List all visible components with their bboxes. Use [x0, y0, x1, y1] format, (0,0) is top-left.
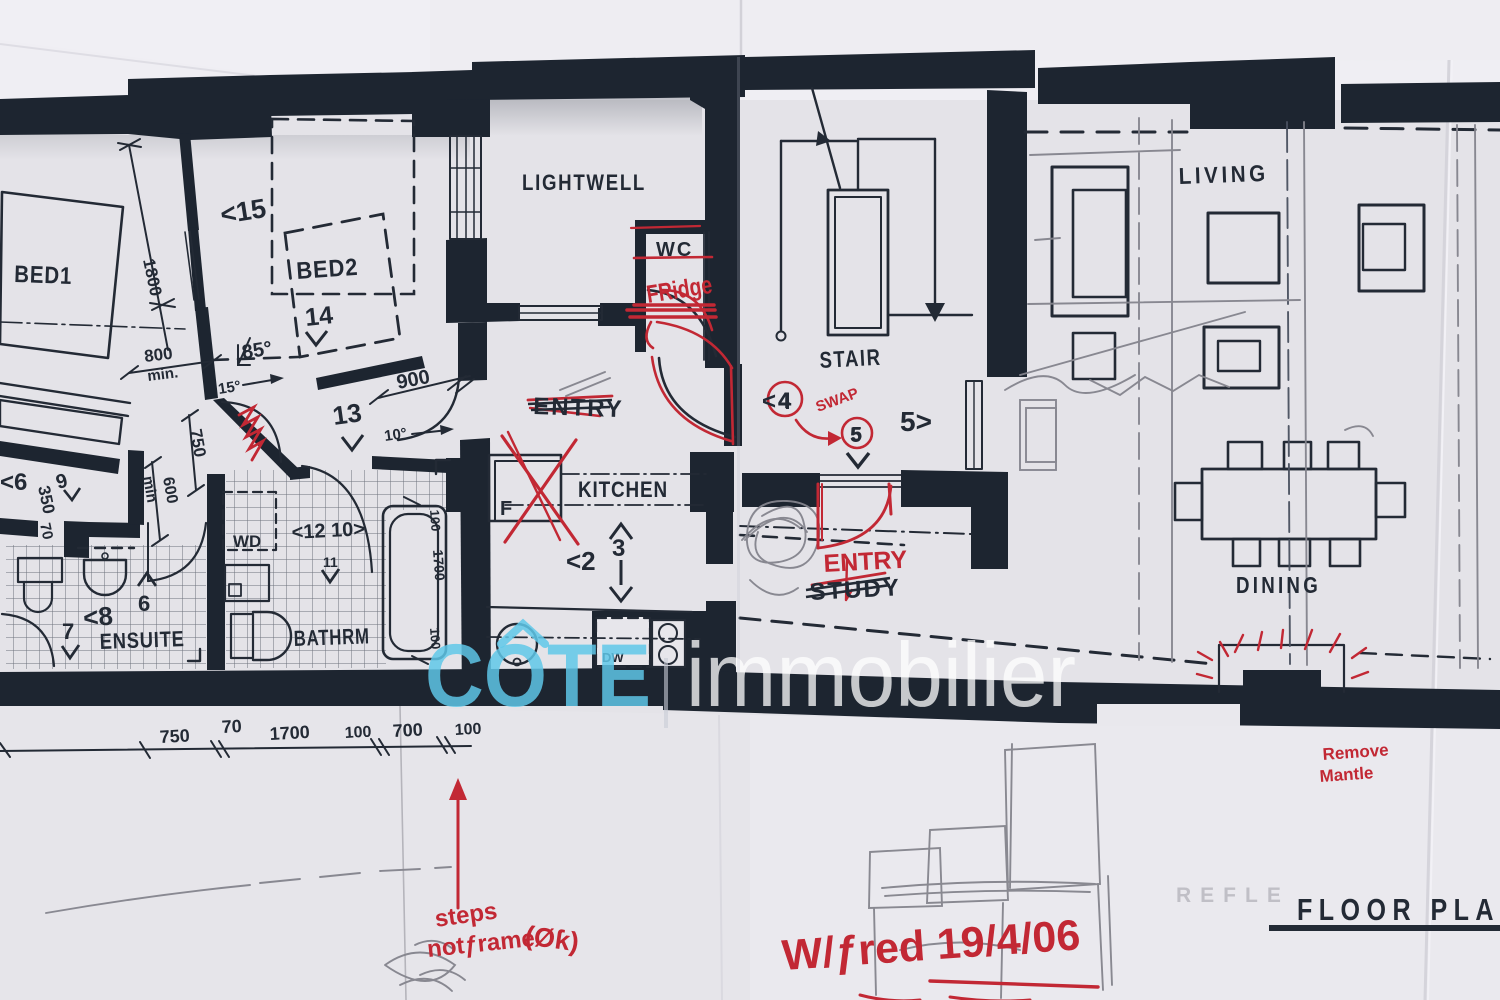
- svg-text:<6: <6: [0, 469, 27, 496]
- svg-text:LIGHTWELL: LIGHTWELL: [522, 170, 646, 195]
- svg-text:BED1: BED1: [14, 261, 73, 290]
- svg-text:REFLE: REFLE: [1176, 884, 1290, 907]
- svg-text:<2: <2: [566, 546, 596, 576]
- svg-text:5>: 5>: [900, 406, 932, 437]
- svg-text:BATHRM: BATHRM: [293, 623, 370, 651]
- svg-text:KITCHEN: KITCHEN: [578, 477, 668, 502]
- svg-text:750: 750: [159, 725, 190, 747]
- svg-text:Mantle: Mantle: [1319, 763, 1374, 786]
- svg-text:100: 100: [344, 724, 372, 742]
- svg-text:5: 5: [851, 424, 862, 446]
- svg-text:WC: WC: [656, 239, 693, 261]
- svg-text:WD: WD: [233, 532, 261, 551]
- svg-text:FLOOR PLA: FLOOR PLA: [1297, 892, 1500, 927]
- svg-text:BED2: BED2: [296, 254, 360, 285]
- svg-text:10°: 10°: [383, 425, 408, 445]
- svg-text:70: 70: [221, 716, 242, 737]
- svg-text:800: 800: [143, 344, 173, 366]
- svg-text:LIVING: LIVING: [1178, 160, 1269, 189]
- svg-text:11: 11: [323, 554, 338, 570]
- svg-text:14: 14: [304, 301, 335, 332]
- svg-text:70: 70: [36, 521, 56, 541]
- svg-text:85°: 85°: [240, 337, 273, 363]
- svg-text:1700: 1700: [269, 722, 310, 744]
- svg-text:1700: 1700: [430, 549, 448, 581]
- svg-text:ENTRY: ENTRY: [823, 546, 908, 578]
- svg-text:7: 7: [62, 619, 74, 644]
- svg-text:100: 100: [427, 509, 443, 532]
- svg-text:700: 700: [392, 719, 423, 741]
- svg-text:3: 3: [612, 535, 625, 562]
- svg-text:STAIR: STAIR: [819, 344, 882, 373]
- svg-text:<8: <8: [82, 601, 114, 633]
- svg-text:<12 10>: <12 10>: [291, 518, 365, 544]
- svg-text:immobilier: immobilier: [686, 625, 1076, 726]
- svg-text:DINING: DINING: [1236, 572, 1321, 598]
- svg-text:4: 4: [778, 388, 791, 413]
- svg-text:F: F: [500, 498, 512, 520]
- svg-text:15°: 15°: [217, 378, 242, 398]
- svg-text:13: 13: [331, 397, 364, 431]
- svg-text:6: 6: [138, 591, 150, 616]
- svg-text:<: <: [762, 388, 776, 415]
